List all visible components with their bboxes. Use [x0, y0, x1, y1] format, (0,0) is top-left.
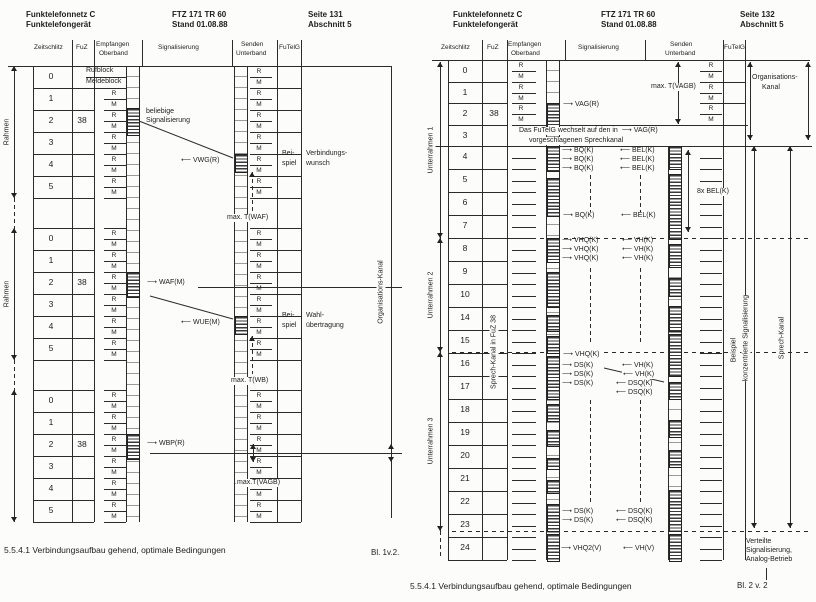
frame-tick — [700, 181, 722, 182]
frame-tick — [512, 181, 536, 182]
frame-tick — [700, 411, 722, 412]
signal-label: Signalisierung — [146, 117, 190, 125]
rule-line — [142, 40, 143, 66]
frame-tick — [512, 491, 536, 492]
cell-underline — [512, 103, 536, 104]
signal-label: ⟵ DSQ(K) — [616, 389, 652, 397]
signal-label: 8x BEL(K) — [696, 188, 730, 196]
meldeblock-marker: M — [256, 469, 261, 476]
cell-underline — [250, 99, 272, 100]
cell-underline — [104, 500, 126, 501]
slot-boundary — [448, 284, 507, 285]
meldeblock-marker: M — [256, 425, 261, 432]
frame-tick — [512, 169, 536, 170]
slot-boundary — [33, 88, 94, 89]
timeslot-number: 17 — [460, 382, 469, 392]
slot-boundary — [33, 250, 94, 251]
arrowhead-up-icon — [11, 66, 17, 71]
cell-underline — [104, 121, 126, 122]
vertical-label: Unterrahmen 2 — [427, 272, 436, 319]
rufblock-marker: R — [257, 296, 262, 303]
frame-tick — [512, 204, 536, 205]
cell-underline — [104, 360, 126, 361]
rule-line — [104, 390, 126, 391]
rule-line — [448, 60, 449, 560]
rufblock-marker: R — [112, 178, 117, 185]
cell-underline — [104, 110, 126, 111]
device-name: Funktelefongerät — [453, 20, 518, 29]
signaling-burst-block — [547, 146, 560, 172]
rufblock-marker: R — [709, 84, 714, 91]
slot-boundary — [448, 261, 507, 262]
signal-label: max. T(WAF) — [226, 214, 269, 222]
meldeblock-marker: M — [111, 101, 116, 108]
page132-page-ref: Seite 132Abschnitt 5 — [740, 10, 784, 31]
timeslot-number: 1 — [49, 418, 54, 428]
signal-label: ⟵ WUE(M) — [181, 319, 220, 327]
rufblock-marker: R — [112, 392, 117, 399]
rule-line — [252, 336, 253, 374]
cell-underline — [104, 305, 126, 306]
vertical-label: Sprech-Kanal in FuZ 38 — [490, 315, 499, 389]
rule-line — [790, 146, 791, 528]
cell-underline — [700, 71, 722, 72]
frame-tick — [512, 261, 536, 262]
fuz-channel-value: 38 — [77, 278, 86, 288]
cell-underline — [250, 283, 272, 284]
timeslot-number: 4 — [49, 160, 54, 170]
signal-transfer-connector — [139, 121, 233, 158]
frame-tick — [512, 307, 536, 308]
frame-tick — [700, 227, 722, 228]
frame-tick — [700, 284, 722, 285]
page-number: Seite 131 — [308, 10, 343, 19]
rule-line — [723, 40, 724, 560]
frame-tick — [700, 457, 722, 458]
slot-boundary — [33, 198, 94, 199]
meldeblock-marker: M — [111, 351, 116, 358]
cell-underline — [250, 489, 272, 490]
cell-underline — [104, 478, 126, 479]
cell-underline — [250, 327, 272, 328]
signal-label: ⟵ VWG(R) — [181, 157, 219, 165]
rufblock-marker: R — [257, 68, 262, 75]
arrowhead-down-icon — [751, 523, 757, 528]
frame-tick — [700, 204, 722, 205]
arrowhead-up-icon — [675, 62, 681, 67]
meldeblock-marker: M — [256, 101, 261, 108]
signal-label: ⟶ VHQ2(V) — [560, 545, 602, 553]
cell-underline — [250, 77, 272, 78]
rufblock-marker: R — [112, 502, 117, 509]
vertical-label: Rahmen — [3, 281, 12, 307]
rule-line — [640, 175, 641, 212]
page132-doc-ref: FTZ 171 TR 60Stand 01.08.88 — [601, 10, 657, 31]
cell-underline — [250, 338, 301, 339]
signaling-burst-block — [669, 244, 682, 268]
signal-label: ⟵ VH(K) — [622, 237, 653, 245]
cell-underline — [250, 294, 301, 295]
rule-line — [33, 390, 94, 391]
frame-bracket — [440, 62, 441, 238]
meldeblock-marker: M — [111, 123, 116, 130]
signaling-burst-block — [547, 504, 560, 532]
cell-underline — [512, 71, 536, 72]
meldeblock-marker: M — [111, 263, 116, 270]
rufblock-marker: R — [112, 252, 117, 259]
slot-boundary — [33, 522, 94, 523]
frame-tick — [700, 526, 722, 527]
cell-underline — [104, 412, 126, 413]
signal-label: Kanal — [762, 84, 780, 92]
rule-line — [688, 150, 689, 232]
rufblock-marker: R — [257, 502, 262, 509]
rufblock-marker: R — [257, 252, 262, 259]
cell-underline — [104, 423, 126, 424]
timeslot-number: 0 — [49, 234, 54, 244]
meldeblock-marker: M — [111, 145, 116, 152]
cell-underline — [104, 176, 126, 177]
signaling-burst-block — [669, 420, 682, 438]
slot-boundary — [448, 82, 507, 83]
signal-label: ⟶ WBP(R) — [146, 440, 186, 448]
slot-boundary — [448, 399, 507, 400]
signal-label: max.T(VAGB) — [236, 479, 281, 487]
page131-page-ref: Seite 131Abschnitt 5 — [308, 10, 352, 31]
cell-underline — [250, 500, 301, 501]
column-header: Zeitschlitz — [34, 44, 63, 51]
signal-label: ⟵ DSQ(K) — [616, 508, 652, 516]
rule-line — [198, 287, 402, 288]
meldeblock-label: Meldeblock — [86, 78, 121, 86]
signaling-burst-block — [235, 154, 248, 173]
frame-tick — [512, 215, 536, 216]
frame-bracket — [14, 360, 15, 390]
slot-boundary — [33, 478, 94, 479]
rule-line — [33, 228, 94, 229]
signaling-burst-block — [547, 272, 560, 308]
signal-label: ⟶ VHQ(K) — [562, 246, 598, 254]
signaling-burst-block — [547, 430, 560, 447]
arrowhead-up-icon — [249, 172, 255, 177]
timeslot-number: 22 — [460, 497, 469, 507]
network-name: Funktelefonnetz C — [453, 10, 522, 19]
rufblock-marker: R — [112, 296, 117, 303]
network-name: Funktelefonnetz C — [26, 10, 95, 19]
signaling-burst-block — [669, 450, 682, 468]
timeslot-number: 8 — [463, 244, 468, 254]
signaling-burst-block — [547, 238, 560, 263]
slot-boundary — [33, 360, 94, 361]
frame-tick — [700, 307, 722, 308]
frame-tick — [700, 549, 722, 550]
timeslot-number: 0 — [463, 66, 468, 76]
signal-label: Signalisierung, — [746, 547, 792, 555]
timeslot-number: 3 — [463, 131, 468, 141]
slot-boundary — [448, 192, 507, 193]
rule-line — [104, 228, 126, 229]
frame-tick — [512, 480, 536, 481]
frame-tick — [512, 399, 536, 400]
rufblock-marker: R — [112, 458, 117, 465]
slot-boundary — [448, 215, 507, 216]
section-number: Abschnitt 5 — [740, 20, 784, 29]
page131-caption: 5.5.4.1 Verbindungsaufbau gehend, optima… — [4, 545, 226, 555]
arrowhead-down-icon — [685, 227, 691, 232]
column-header: Zeitschlitz — [441, 44, 470, 51]
vertical-label: Rahmen — [3, 119, 12, 145]
signal-label: ⟵ VH(K) — [622, 371, 655, 379]
signaling-burst-block — [547, 103, 560, 128]
rufblock-marker: R — [112, 112, 117, 119]
meldeblock-marker: M — [256, 329, 261, 336]
cell-underline — [250, 176, 301, 177]
signal-transfer-connector — [150, 296, 233, 319]
frame-tick — [512, 503, 536, 504]
rule-line — [72, 40, 73, 522]
timeslot-number: 6 — [463, 198, 468, 208]
rufblock-marker: R — [257, 90, 262, 97]
timeslot-number: 15 — [460, 336, 469, 346]
frame-tick — [700, 480, 722, 481]
meldeblock-marker: M — [518, 73, 523, 80]
timeslot-number: 2 — [49, 278, 54, 288]
meldeblock-marker: M — [518, 116, 523, 123]
timeslot-number: 20 — [460, 451, 469, 461]
column-header: Signalisierung — [578, 44, 619, 51]
frame-tick — [512, 422, 536, 423]
meldeblock-marker: M — [708, 95, 713, 102]
cell-underline — [104, 143, 126, 144]
cell-underline — [104, 401, 126, 402]
page132-caption: 5.5.4.1 Verbindungsaufbau gehend, optima… — [410, 581, 632, 591]
cell-underline — [104, 294, 126, 295]
timeslot-number: 1 — [49, 256, 54, 266]
column-header: Unterband — [665, 50, 695, 57]
signal-label: ⟶ VHQ(K) — [562, 351, 600, 359]
arrowhead-up-icon — [805, 62, 811, 67]
meldeblock-marker: M — [256, 123, 261, 130]
page131-doc-title: Funktelefonnetz CFunktelefongerät — [26, 10, 95, 31]
timeslot-number: 16 — [460, 359, 469, 369]
frame-tick — [512, 319, 536, 320]
frame-tick — [700, 215, 722, 216]
cell-underline — [250, 456, 301, 457]
signaling-burst-block — [547, 480, 560, 494]
cell-underline — [250, 434, 301, 435]
slot-boundary — [33, 154, 94, 155]
signal-label: ⟶ VHQ(K) — [562, 255, 598, 263]
cell-underline — [250, 401, 272, 402]
timeslot-number: 5 — [49, 506, 54, 516]
signal-label: ⟵ BEL(K) — [620, 147, 655, 155]
frame-tick — [512, 514, 536, 515]
cell-underline — [104, 349, 126, 350]
column-header: Senden — [670, 41, 692, 48]
rufblock-marker: R — [112, 230, 117, 237]
signal-label: ⟶ VHQ(K) — [562, 237, 598, 245]
column-header: Unterband — [236, 50, 266, 57]
cell-underline — [250, 239, 272, 240]
frame-tick — [700, 399, 722, 400]
rufblock-marker: R — [112, 156, 117, 163]
signal-label: Verbindungs- — [306, 150, 347, 158]
frame-tick — [700, 330, 722, 331]
fuz-channel-value: 38 — [77, 440, 86, 450]
frame-tick — [700, 261, 722, 262]
signaling-burst-block — [669, 490, 682, 532]
signal-label: ⟶ DS(K) — [562, 371, 593, 379]
cell-underline — [104, 198, 126, 199]
column-header: Oberband — [99, 50, 128, 57]
timeslot-number: 23 — [460, 520, 469, 530]
rufblock-marker: R — [257, 112, 262, 119]
meldeblock-marker: M — [111, 307, 116, 314]
timeslot-number: 2 — [49, 116, 54, 126]
cell-underline — [104, 445, 126, 446]
rufblock-marker: R — [519, 105, 524, 112]
rule-line — [640, 268, 641, 345]
timeslot-number: 14 — [460, 313, 469, 323]
timeslot-number: 0 — [49, 72, 54, 82]
signal-label: übertragung — [306, 322, 344, 330]
rule-line — [94, 40, 95, 522]
doc-date: Stand 01.08.88 — [601, 20, 657, 29]
rule-line — [750, 62, 751, 140]
meldeblock-marker: M — [111, 167, 116, 174]
frame-tick — [512, 192, 536, 193]
cell-underline — [250, 250, 301, 251]
meldeblock-marker: M — [111, 241, 116, 248]
section-number: Abschnitt 5 — [308, 20, 352, 29]
signal-label: ⟵ VH(K) — [622, 362, 653, 370]
cell-underline — [512, 114, 536, 115]
doc-number: FTZ 171 TR 60 — [601, 10, 655, 19]
cell-underline — [250, 261, 272, 262]
slot-boundary — [33, 500, 94, 501]
arrowhead-up-icon — [388, 444, 394, 449]
signaling-burst-block — [547, 458, 560, 470]
frame-tick — [512, 330, 536, 331]
rufblock-marker: R — [257, 436, 262, 443]
meldeblock-marker: M — [256, 167, 261, 174]
rufblock-marker: R — [257, 156, 262, 163]
frame-tick — [512, 353, 536, 354]
frame-tick — [700, 250, 722, 251]
meldeblock-marker: M — [111, 491, 116, 498]
frame-tick — [700, 376, 722, 377]
vertical-label: Unterrahmen 3 — [427, 418, 436, 465]
column-header: Signalisierung — [158, 44, 199, 51]
signal-label: ⟶ BQ(K) — [562, 212, 595, 220]
signal-label: Wahl- — [306, 312, 324, 320]
signal-label: ⟶ WAF(M) — [146, 279, 186, 287]
arrowhead-up-icon — [685, 150, 691, 155]
fuz-channel-value: 38 — [489, 109, 498, 119]
arrowhead-down-icon — [747, 135, 753, 140]
cell-underline — [104, 250, 126, 251]
rufblock-marker: R — [257, 274, 262, 281]
cell-underline — [104, 283, 126, 284]
meldeblock-marker: M — [111, 329, 116, 336]
meldeblock-marker: M — [708, 116, 713, 123]
column-header: FuZ — [76, 44, 88, 51]
slot-boundary — [33, 434, 94, 435]
timeslot-number: 19 — [460, 428, 469, 438]
meldeblock-marker: M — [518, 95, 523, 102]
meldeblock-marker: M — [256, 513, 261, 520]
frame-bracket — [440, 352, 441, 531]
frame-tick — [512, 560, 536, 561]
slot-boundary — [33, 132, 94, 133]
signal-label: ⟵ VH(K) — [622, 246, 653, 254]
rufblock-marker: R — [257, 340, 262, 347]
meldeblock-marker: M — [256, 307, 261, 314]
signal-label: Das FuTelG wechselt auf den in ⟶ VAG(R) — [518, 127, 659, 135]
column-header: FuTelG — [279, 44, 300, 51]
meldeblock-marker: M — [111, 469, 116, 476]
frame-tick — [700, 468, 722, 469]
subframe-boundary — [452, 531, 808, 532]
cell-underline — [700, 114, 722, 115]
rule-line — [8, 66, 391, 67]
signal-label: ⟶ BQ(K) — [562, 165, 593, 173]
cell-underline — [104, 99, 126, 100]
cell-underline — [104, 132, 126, 133]
vertical-label: Unterrahmen 1 — [427, 127, 436, 174]
arrowhead-down-icon — [805, 135, 811, 140]
signaling-burst-block — [669, 278, 682, 297]
arrowhead-up-icon — [437, 238, 443, 243]
slot-boundary — [448, 169, 507, 170]
cell-underline — [250, 305, 272, 306]
vertical-label: Sprech-Kanal — [778, 317, 787, 359]
meldeblock-marker: M — [256, 189, 261, 196]
cell-underline — [250, 423, 272, 424]
vertical-label: Organisations-Kanal — [377, 260, 386, 323]
frame-tick — [700, 445, 722, 446]
cell-underline — [250, 412, 301, 413]
rule-line — [766, 568, 767, 580]
signaling-burst-block — [547, 315, 560, 332]
signal-label: ⟶ BQ(K) — [562, 156, 593, 164]
arrowhead-down-icon — [11, 517, 17, 522]
column-header: Empfangen — [96, 41, 129, 48]
meldeblock-marker: M — [111, 425, 116, 432]
page-number: Seite 132 — [740, 10, 775, 19]
timeslot-number: 4 — [463, 152, 468, 162]
timeslot-number: 3 — [49, 300, 54, 310]
signal-label: max. T(VAGB) — [650, 83, 697, 91]
cell-underline — [86, 88, 126, 89]
meldeblock-marker: M — [256, 241, 261, 248]
slot-boundary — [448, 491, 507, 492]
rufblock-marker: R — [257, 392, 262, 399]
arrowhead-up-icon — [787, 146, 793, 151]
signaling-burst-block — [547, 404, 560, 422]
page131-doc-ref: FTZ 171 TR 60Stand 01.08.88 — [172, 10, 228, 31]
cell-underline — [700, 93, 722, 94]
cell-underline — [512, 82, 536, 83]
slot-boundary — [33, 110, 94, 111]
cell-underline — [104, 522, 126, 523]
frame-bracket — [14, 198, 15, 228]
cell-underline — [104, 316, 126, 317]
signal-label: ⟵ DSQ(K) — [616, 517, 652, 525]
timeslot-number: 9 — [463, 267, 468, 277]
meldeblock-marker: M — [111, 285, 116, 292]
timeslot-number: 5 — [49, 344, 54, 354]
